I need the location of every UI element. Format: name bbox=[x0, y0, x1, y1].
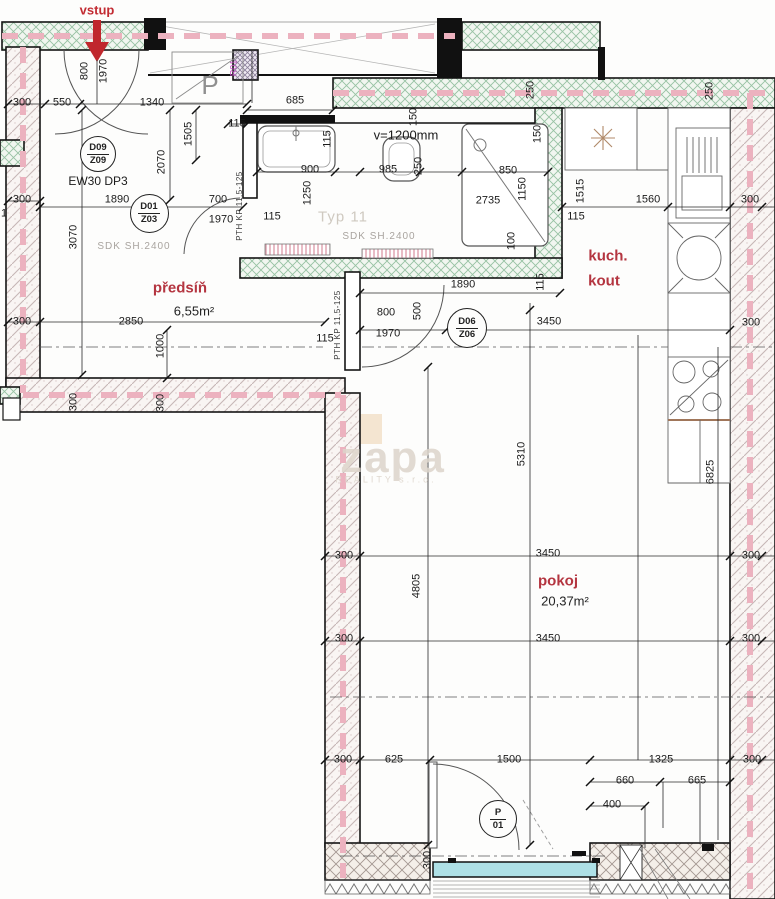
dimension-label: 3450 bbox=[537, 317, 561, 328]
door-tag-top: P bbox=[492, 807, 504, 819]
dimension-label: 985 bbox=[379, 165, 397, 176]
material-note: PTH KP 11,5-125 bbox=[236, 171, 244, 240]
dimension-label: 850 bbox=[499, 166, 517, 177]
dimension-label: 300 bbox=[13, 195, 31, 206]
dimension-label: 1890 bbox=[451, 280, 475, 291]
dimension-label: 800 bbox=[80, 62, 91, 80]
dimension-label: 100 bbox=[507, 232, 518, 250]
dimension-label: 300 bbox=[13, 98, 31, 109]
dimension-label: 1970 bbox=[99, 59, 110, 83]
dimension-label: 115 bbox=[228, 119, 246, 130]
dimension-label: v=1200mm bbox=[374, 129, 439, 142]
dimension-label: 300 bbox=[741, 195, 759, 206]
room-area: 6,55m² bbox=[174, 305, 214, 318]
dimension-label: 3450 bbox=[536, 549, 560, 560]
dimension-label: 660 bbox=[616, 776, 634, 787]
dimension-label: 4805 bbox=[412, 574, 423, 598]
door-tag-top: D09 bbox=[86, 142, 109, 154]
dimension-label: 300 bbox=[742, 551, 760, 562]
dimension-label: 300 bbox=[742, 318, 760, 329]
room-label: pokoj bbox=[538, 574, 578, 589]
dimension-label: EW30 DP3 bbox=[68, 175, 127, 187]
dimension-label: 2735 bbox=[476, 196, 500, 207]
dimension-label: 685 bbox=[286, 96, 304, 107]
dimension-label: 550 bbox=[53, 98, 71, 109]
entrance-label: vstup bbox=[80, 4, 115, 17]
dimension-label: 1325 bbox=[649, 755, 673, 766]
door-tag-p: P01 bbox=[479, 800, 517, 838]
room-label: předsíň bbox=[153, 281, 207, 296]
dimension-label: 1000 bbox=[156, 334, 167, 358]
dimension-label: 665 bbox=[688, 776, 706, 787]
dimension-label: 300 bbox=[742, 634, 760, 645]
watermark-subtext: REALITY s.r.o. bbox=[335, 476, 436, 485]
dimension-label: 800 bbox=[377, 308, 395, 319]
dimension-label: 300 bbox=[13, 317, 31, 328]
dimension-label: 150 bbox=[409, 108, 420, 126]
door-tag-d06: D06Z06 bbox=[447, 308, 487, 348]
dimension-label: 115 bbox=[567, 212, 585, 223]
door-tag-top: D06 bbox=[455, 316, 478, 328]
room-label: kuch. bbox=[588, 249, 627, 264]
dimension-label: 300 bbox=[743, 755, 761, 766]
dimension-label: 115 bbox=[316, 334, 334, 345]
dimension-label: 1500 bbox=[497, 755, 521, 766]
dimension-label: 300 bbox=[423, 851, 434, 869]
wardrobe-label: P bbox=[201, 72, 218, 98]
room-area: 20,37m² bbox=[541, 595, 589, 608]
dimension-label: 3450 bbox=[536, 634, 560, 645]
dimension-label: 1505 bbox=[184, 122, 195, 146]
dimension-label: 1890 bbox=[105, 195, 129, 206]
dimension-label: 250 bbox=[414, 157, 425, 175]
dimension-label: 1150 bbox=[518, 177, 529, 201]
ceiling-note: SDK SH.2400 bbox=[97, 242, 170, 252]
dimension-label: 115 bbox=[323, 130, 334, 148]
material-note: PTH KP 11,5-125 bbox=[334, 290, 342, 359]
dimension-label: 400 bbox=[603, 800, 621, 811]
dimension-label: 1560 bbox=[636, 195, 660, 206]
dimension-label: 6825 bbox=[706, 460, 717, 484]
dimension-label: 1 bbox=[1, 209, 7, 220]
dimension-label: 300 bbox=[334, 755, 352, 766]
dimension-label: 1340 bbox=[140, 98, 164, 109]
dimension-label: 300 bbox=[69, 393, 80, 411]
dimension-label: 1515 bbox=[576, 179, 587, 203]
dimension-label: 115 bbox=[263, 212, 281, 223]
dimension-label: 300 bbox=[156, 394, 167, 412]
dimension-label: 300 bbox=[335, 634, 353, 645]
door-tag-bottom: 01 bbox=[490, 819, 507, 832]
dimension-label: 250 bbox=[705, 82, 716, 100]
door-tag-bottom: Z06 bbox=[456, 328, 478, 341]
dimension-label: 2070 bbox=[157, 150, 168, 174]
dimension-label: 2850 bbox=[119, 317, 143, 328]
door-tag-top: D01 bbox=[137, 201, 160, 213]
door-tag-bottom: Z09 bbox=[87, 154, 109, 167]
dimension-label: 700 bbox=[209, 195, 227, 206]
dimension-label: 3070 bbox=[69, 225, 80, 249]
room-label: kout bbox=[588, 274, 620, 289]
dimension-label: 500 bbox=[413, 302, 424, 320]
dimension-label: 300 bbox=[335, 551, 353, 562]
dimension-label: 625 bbox=[385, 755, 403, 766]
door-tag-d09: D09Z09 bbox=[80, 136, 116, 172]
ceiling-note: SDK SH.2400 bbox=[342, 232, 415, 242]
dimension-label: 150 bbox=[533, 125, 544, 143]
dimension-label: 1970 bbox=[376, 329, 400, 340]
dimension-label: 5310 bbox=[517, 442, 528, 466]
dimension-label: 115 bbox=[536, 273, 547, 291]
dimension-label: 1250 bbox=[303, 181, 314, 205]
watermark-text: zapa bbox=[340, 436, 446, 480]
door-tag-bottom: Z03 bbox=[138, 213, 160, 226]
type-note: Typ 11 bbox=[318, 210, 368, 225]
door-tag-d01: D01Z03 bbox=[130, 194, 169, 233]
riser-label: R01 bbox=[230, 60, 239, 77]
dimension-label: 1970 bbox=[209, 215, 233, 226]
floor-plan: vstup80019703005501340685115300189070019… bbox=[0, 0, 775, 899]
dimension-label: 900 bbox=[301, 165, 319, 176]
annotation-layer: vstup80019703005501340685115300189070019… bbox=[0, 0, 775, 899]
dimension-label: 250 bbox=[526, 81, 537, 99]
